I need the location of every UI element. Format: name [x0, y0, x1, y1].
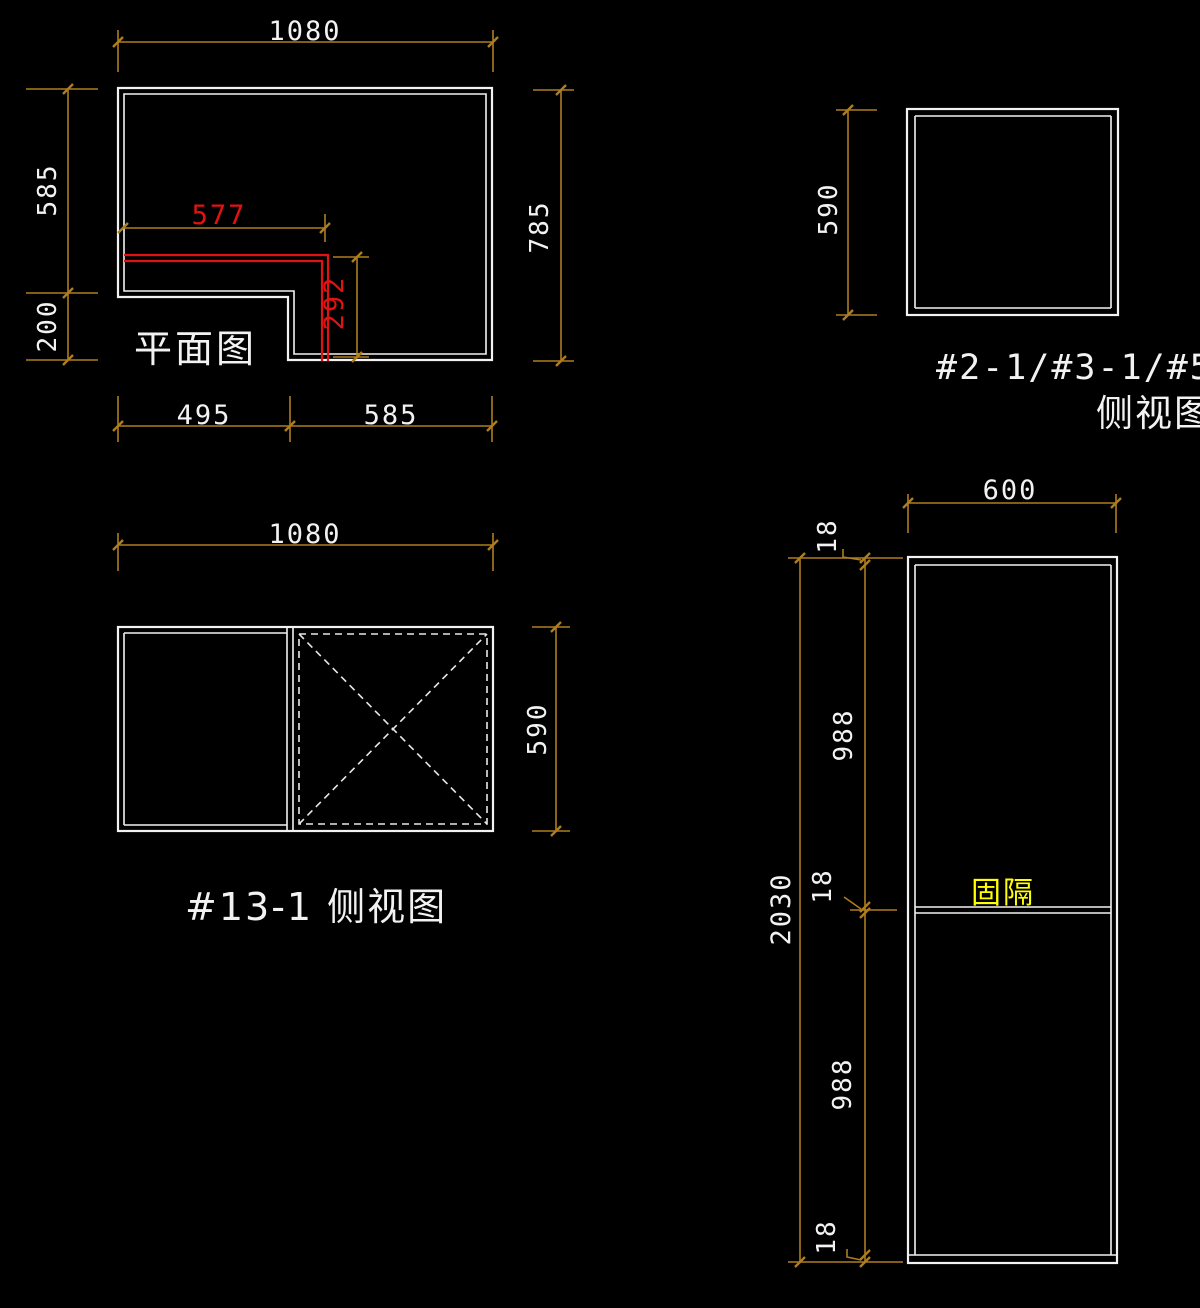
- tall-dim-top-panel-text: 18: [813, 518, 843, 553]
- small-side-label-ids: #2-1/#3-1/#5-1: [936, 348, 1200, 388]
- plan-dim-bottom-right-text: 585: [364, 400, 419, 431]
- plan-dim-left-lower-text: 200: [33, 300, 63, 353]
- small-side-dim-left-text: 590: [814, 183, 844, 236]
- canvas-background: [0, 0, 1200, 1308]
- plan-dim-red-depth-text: 292: [319, 276, 350, 331]
- tall-dim-lower-section-text: 988: [828, 1058, 858, 1111]
- plan-dim-left-upper-text: 585: [33, 164, 63, 217]
- tall-dim-top-text: 600: [983, 475, 1038, 506]
- tall-dim-total-text: 2030: [766, 872, 797, 945]
- side-13-label: #13-1 侧视图: [185, 885, 447, 929]
- cad-canvas: 1080 585 200 785 495 585 577: [0, 0, 1200, 1308]
- small-side-label-view: 侧视图: [1096, 392, 1200, 435]
- plan-dim-bottom-left-text: 495: [177, 400, 232, 431]
- plan-dim-right-text: 785: [525, 201, 555, 254]
- tall-dim-middle-panel-text: 18: [808, 868, 838, 903]
- side-13-dim-top-text: 1080: [268, 519, 341, 550]
- tall-dim-upper-section-text: 988: [829, 709, 859, 762]
- side-13-dim-right-text: 590: [523, 703, 553, 756]
- tall-dim-bottom-panel-text: 18: [812, 1219, 842, 1254]
- plan-dim-red-width-text: 577: [192, 200, 247, 231]
- plan-dim-top-text: 1080: [268, 16, 341, 47]
- plan-view-label: 平面图: [134, 327, 257, 371]
- tall-partition-label: 固隔: [971, 876, 1035, 911]
